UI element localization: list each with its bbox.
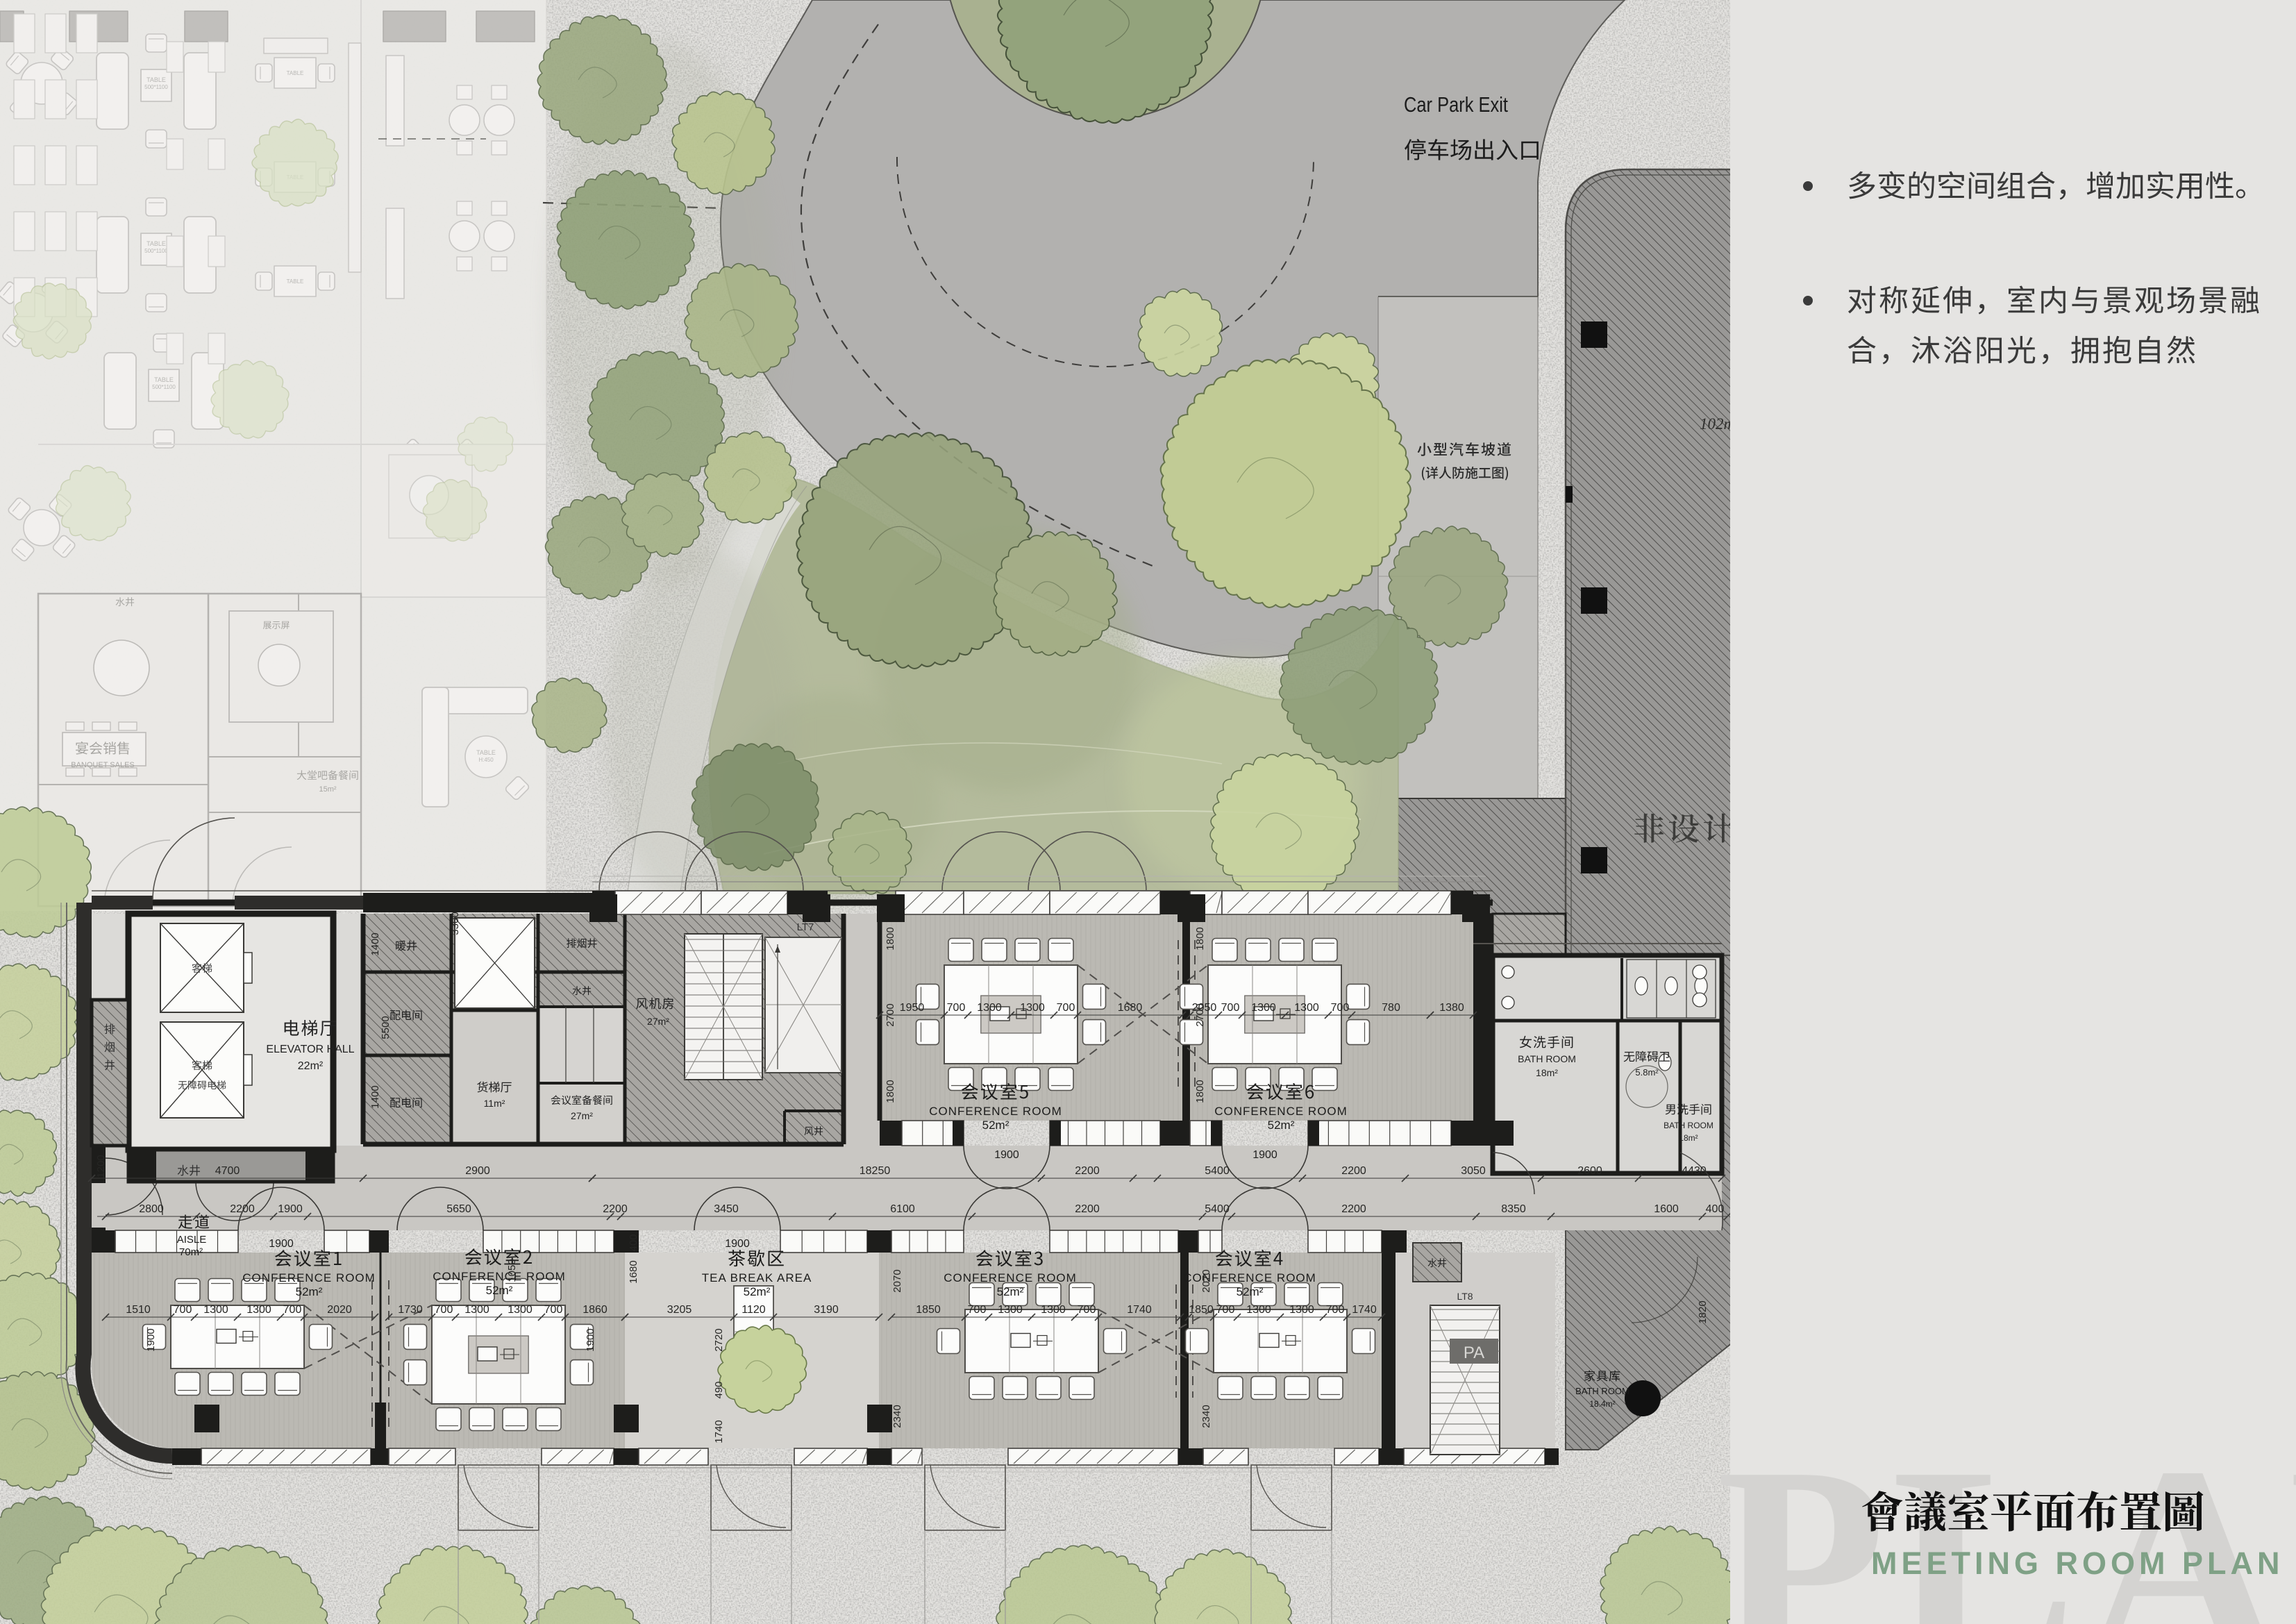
svg-text:BATH ROOM: BATH ROOM: [1664, 1121, 1713, 1130]
svg-text:1860: 1860: [583, 1304, 607, 1316]
svg-text:1300: 1300: [1251, 1002, 1276, 1014]
svg-text:2800: 2800: [139, 1203, 164, 1215]
svg-text:TABLE: TABLE: [287, 70, 304, 76]
svg-text:TABLE: TABLE: [146, 240, 166, 247]
svg-text:2600: 2600: [1577, 1165, 1602, 1177]
svg-text:5.8m²: 5.8m²: [1635, 1067, 1659, 1078]
svg-text:27m²: 27m²: [647, 1016, 669, 1027]
svg-text:2200: 2200: [1341, 1203, 1366, 1215]
svg-text:1850: 1850: [1189, 1304, 1214, 1316]
svg-text:MEETING ROOM PLAN: MEETING ROOM PLAN: [1871, 1546, 2284, 1581]
svg-text:4700: 4700: [215, 1165, 240, 1177]
svg-text:1900: 1900: [725, 1238, 750, 1250]
svg-text:1050: 1050: [506, 1259, 518, 1282]
svg-text:700: 700: [1078, 1304, 1096, 1316]
svg-text:700: 700: [1221, 1002, 1240, 1014]
svg-text:BATH ROOM: BATH ROOM: [1518, 1053, 1576, 1064]
svg-text:1800: 1800: [885, 1080, 896, 1103]
svg-text:11m²: 11m²: [484, 1098, 505, 1109]
svg-text:700: 700: [544, 1304, 563, 1316]
svg-text:1950: 1950: [900, 1002, 925, 1014]
svg-text:BATH ROOM: BATH ROOM: [1575, 1386, 1629, 1396]
svg-text:2200: 2200: [1341, 1165, 1366, 1177]
svg-text:1300: 1300: [1289, 1304, 1314, 1316]
svg-text:TABLE: TABLE: [476, 749, 496, 756]
svg-text:1300: 1300: [246, 1304, 271, 1316]
svg-text:52m²: 52m²: [982, 1119, 1009, 1132]
svg-text:1300: 1300: [1294, 1002, 1319, 1014]
svg-text:500*1100: 500*1100: [152, 384, 176, 390]
svg-text:700: 700: [435, 1304, 453, 1316]
svg-text:700: 700: [174, 1304, 192, 1316]
svg-text:2070: 2070: [1200, 1269, 1212, 1292]
svg-text:1680: 1680: [1118, 1002, 1143, 1014]
svg-text:1820: 1820: [1697, 1300, 1709, 1323]
svg-text:1900: 1900: [585, 1328, 596, 1351]
svg-text:PLAN: PLAN: [1716, 1409, 2296, 1624]
svg-text:1400: 1400: [369, 1085, 381, 1108]
svg-text:700: 700: [1331, 1002, 1350, 1014]
svg-text:18250: 18250: [860, 1165, 891, 1177]
svg-text:2200: 2200: [1075, 1165, 1100, 1177]
svg-text:3300: 3300: [449, 912, 461, 935]
svg-text:700: 700: [1216, 1304, 1235, 1316]
svg-text:1800: 1800: [885, 927, 896, 950]
svg-text:4430: 4430: [1682, 1165, 1707, 1177]
svg-text:3450: 3450: [714, 1203, 739, 1215]
svg-text:1300: 1300: [1041, 1304, 1066, 1316]
svg-text:CONFERENCE ROOM: CONFERENCE ROOM: [242, 1271, 376, 1284]
svg-text:1800: 1800: [1194, 927, 1206, 950]
svg-text:18m²: 18m²: [1679, 1133, 1698, 1143]
svg-text:1740: 1740: [713, 1420, 725, 1443]
svg-text:1850: 1850: [916, 1304, 941, 1316]
svg-text:2340: 2340: [891, 1405, 903, 1428]
svg-text:1740: 1740: [1352, 1304, 1377, 1316]
svg-text:3205: 3205: [667, 1304, 692, 1316]
svg-text:1510: 1510: [126, 1304, 151, 1316]
svg-text:52m²: 52m²: [486, 1284, 513, 1297]
svg-text:2900: 2900: [465, 1165, 490, 1177]
svg-text:1200: 1200: [95, 1155, 107, 1178]
svg-text:52m²: 52m²: [296, 1285, 323, 1298]
svg-text:1380: 1380: [1439, 1002, 1464, 1014]
svg-text:52m²: 52m²: [744, 1285, 771, 1298]
svg-text:27m²: 27m²: [571, 1110, 593, 1121]
svg-text:1300: 1300: [203, 1304, 228, 1316]
svg-text:6100: 6100: [890, 1203, 915, 1215]
svg-text:1300: 1300: [1020, 1002, 1045, 1014]
svg-text:1900: 1900: [278, 1203, 303, 1215]
svg-text:1740: 1740: [1127, 1304, 1152, 1316]
svg-text:3050: 3050: [1461, 1165, 1486, 1177]
svg-text:500*1100: 500*1100: [144, 248, 168, 254]
svg-text:LT7: LT7: [797, 921, 814, 933]
svg-text:22m²: 22m²: [298, 1060, 324, 1072]
svg-text:1300: 1300: [508, 1304, 533, 1316]
svg-text:500*1100: 500*1100: [144, 84, 168, 90]
svg-text:1600: 1600: [1654, 1203, 1679, 1215]
svg-text:1900: 1900: [269, 1238, 294, 1250]
svg-text:2200: 2200: [230, 1203, 255, 1215]
svg-text:1730: 1730: [398, 1304, 423, 1316]
svg-text:ELEVATOR HALL: ELEVATOR HALL: [266, 1044, 354, 1055]
svg-text:CONFERENCE ROOM: CONFERENCE ROOM: [433, 1270, 566, 1283]
svg-text:400: 400: [1706, 1203, 1725, 1215]
svg-text:400: 400: [628, 1234, 639, 1251]
svg-text:1900: 1900: [994, 1149, 1019, 1161]
svg-text:2020: 2020: [327, 1304, 352, 1316]
svg-text:1120: 1120: [741, 1304, 766, 1316]
svg-text:102m: 102m: [1700, 415, 1735, 433]
svg-text:PA: PA: [1464, 1343, 1484, 1362]
svg-text:5400: 5400: [1205, 1165, 1230, 1177]
svg-text:2720: 2720: [713, 1328, 725, 1351]
svg-text:2070: 2070: [891, 1269, 903, 1292]
svg-text:1300: 1300: [464, 1304, 489, 1316]
svg-text:TABLE: TABLE: [154, 376, 174, 383]
svg-text:LT8: LT8: [1457, 1291, 1473, 1302]
svg-text:780: 780: [1382, 1002, 1400, 1014]
svg-text:5650: 5650: [446, 1203, 471, 1215]
svg-text:TABLE: TABLE: [287, 278, 304, 285]
svg-text:Car Park Exit: Car Park Exit: [1404, 92, 1508, 117]
svg-text:CONFERENCE ROOM: CONFERENCE ROOM: [1214, 1105, 1348, 1118]
svg-text:52m²: 52m²: [1237, 1285, 1264, 1298]
svg-text:700: 700: [283, 1304, 302, 1316]
svg-text:1900: 1900: [145, 1328, 157, 1351]
svg-text:700: 700: [947, 1002, 966, 1014]
svg-text:2340: 2340: [1200, 1405, 1212, 1428]
svg-text:52m²: 52m²: [1268, 1119, 1295, 1132]
svg-text:18.4m²: 18.4m²: [1589, 1399, 1615, 1409]
svg-text:5500: 5500: [380, 1016, 392, 1039]
svg-text:2700: 2700: [885, 1003, 896, 1026]
svg-text:3190: 3190: [814, 1304, 839, 1316]
svg-text:700: 700: [1057, 1002, 1075, 1014]
svg-text:1800: 1800: [1194, 1080, 1206, 1103]
svg-text:700: 700: [1326, 1304, 1345, 1316]
svg-text:15m²: 15m²: [319, 785, 336, 794]
svg-text:AISLE: AISLE: [177, 1234, 207, 1246]
svg-text:18m²: 18m²: [1536, 1067, 1558, 1078]
svg-text:1900: 1900: [1252, 1149, 1277, 1161]
svg-text:TEA BREAK AREA: TEA BREAK AREA: [702, 1271, 812, 1284]
svg-text:52m²: 52m²: [997, 1285, 1024, 1298]
svg-text:490: 490: [713, 1381, 725, 1398]
svg-text:2200: 2200: [1075, 1203, 1100, 1215]
svg-text:1680: 1680: [628, 1260, 639, 1283]
svg-text:8350: 8350: [1501, 1203, 1526, 1215]
svg-text:70m²: 70m²: [179, 1246, 203, 1258]
svg-text:1300: 1300: [998, 1304, 1023, 1316]
svg-text:CONFERENCE ROOM: CONFERENCE ROOM: [929, 1105, 1062, 1118]
svg-text:2700: 2700: [1194, 1003, 1206, 1026]
svg-text:700: 700: [968, 1304, 987, 1316]
svg-text:1300: 1300: [977, 1002, 1002, 1014]
svg-text:CONFERENCE ROOM: CONFERENCE ROOM: [944, 1271, 1077, 1284]
svg-text:H:450: H:450: [478, 757, 494, 763]
svg-text:1300: 1300: [1246, 1304, 1271, 1316]
svg-text:5400: 5400: [1205, 1203, 1230, 1215]
svg-text:TABLE: TABLE: [146, 76, 166, 83]
svg-text:1400: 1400: [369, 932, 381, 955]
svg-text:BANQUET SALES: BANQUET SALES: [71, 761, 135, 769]
